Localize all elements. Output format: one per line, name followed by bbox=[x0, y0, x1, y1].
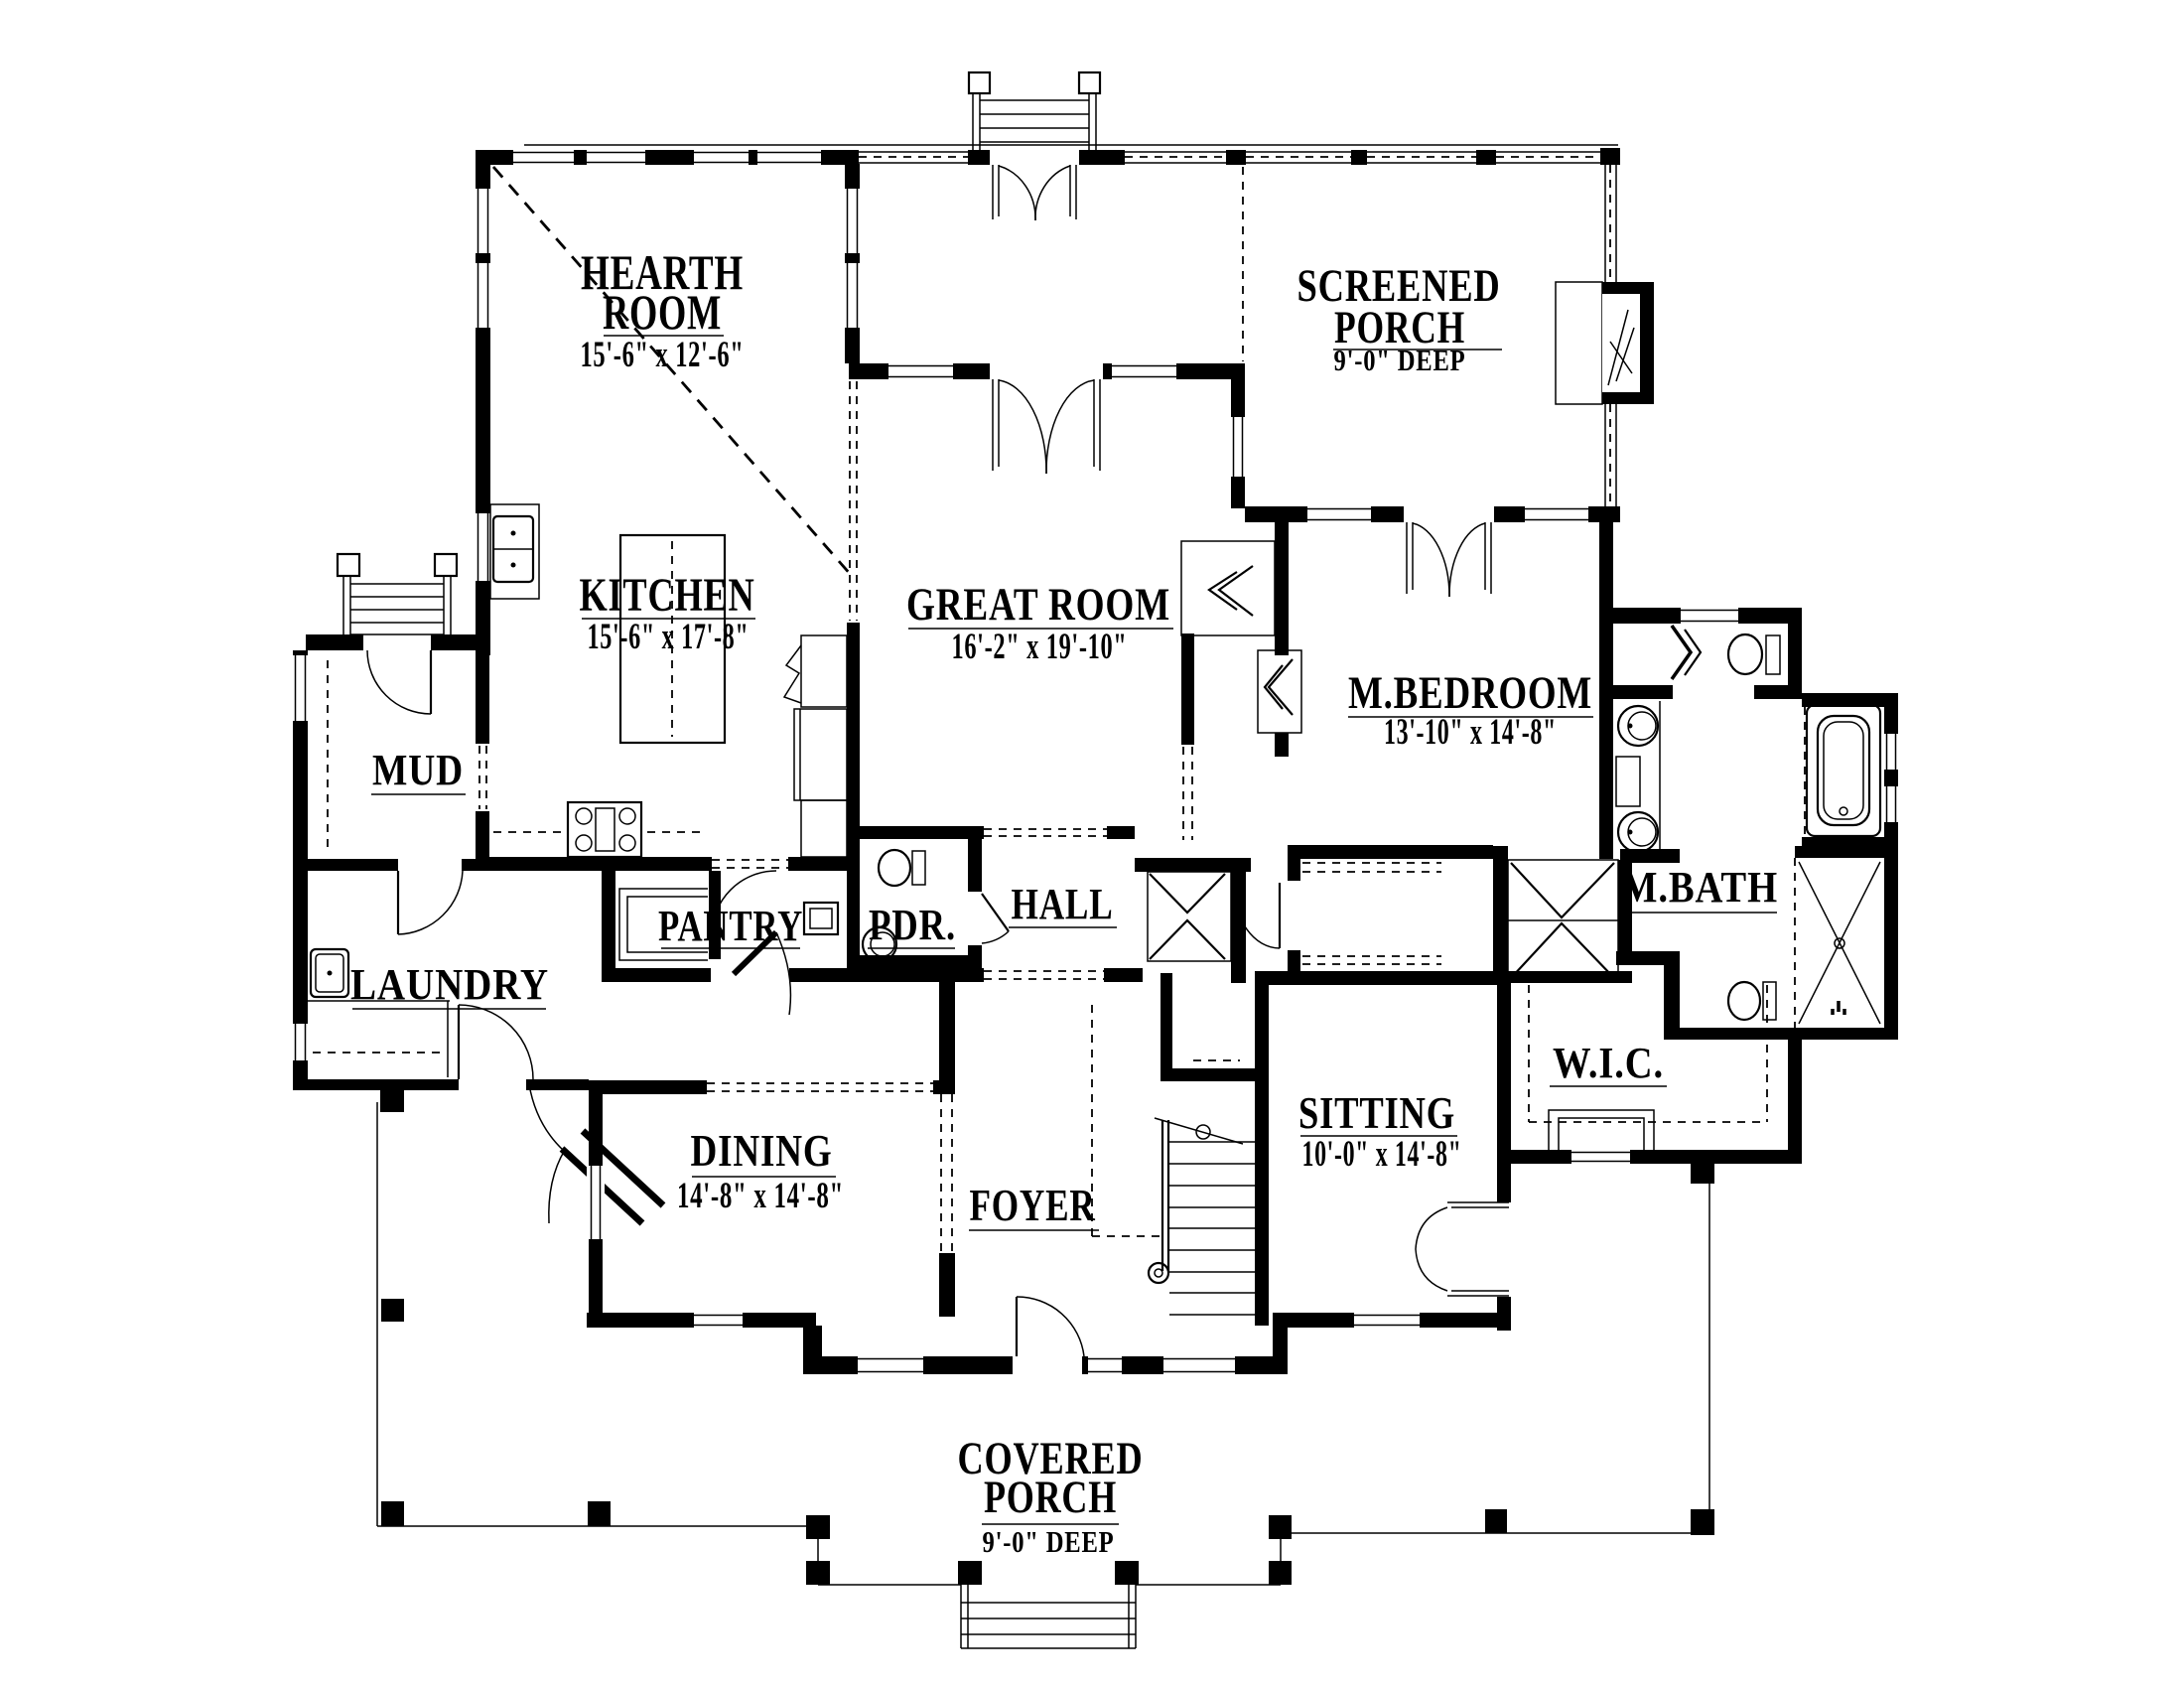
svg-text:PDR.: PDR. bbox=[869, 901, 956, 949]
svg-text:MUD: MUD bbox=[372, 746, 464, 794]
svg-text:W.I.C.: W.I.C. bbox=[1553, 1039, 1664, 1087]
svg-text:PANTRY: PANTRY bbox=[658, 902, 803, 950]
svg-text:FOYER: FOYER bbox=[970, 1180, 1096, 1230]
svg-text:ROOM: ROOM bbox=[603, 284, 722, 340]
svg-text:9'-0" DEEP: 9'-0" DEEP bbox=[1334, 343, 1466, 377]
svg-text:LAUNDRY: LAUNDRY bbox=[350, 960, 549, 1009]
svg-text:13'-10" x 14'-8": 13'-10" x 14'-8" bbox=[1384, 712, 1557, 753]
svg-text:9'-0" DEEP: 9'-0" DEEP bbox=[983, 1524, 1115, 1559]
svg-text:15'-6" x 17'-8": 15'-6" x 17'-8" bbox=[588, 617, 750, 657]
svg-text:GREAT ROOM: GREAT ROOM bbox=[906, 579, 1170, 631]
svg-text:DINING: DINING bbox=[691, 1125, 833, 1176]
svg-text:SITTING: SITTING bbox=[1298, 1087, 1455, 1138]
svg-text:KITCHEN: KITCHEN bbox=[580, 569, 755, 622]
svg-text:10'-0" x 14'-8": 10'-0" x 14'-8" bbox=[1302, 1134, 1462, 1175]
svg-text:HALL: HALL bbox=[1012, 880, 1114, 928]
svg-text:M.BATH: M.BATH bbox=[1621, 863, 1778, 912]
svg-text:PORCH: PORCH bbox=[984, 1472, 1117, 1523]
svg-text:16'-2" x 19'-10": 16'-2" x 19'-10" bbox=[952, 627, 1128, 667]
svg-text:15'-6" x 12'-6": 15'-6" x 12'-6" bbox=[581, 335, 745, 375]
svg-text:14'-8" x 14'-8": 14'-8" x 14'-8" bbox=[677, 1176, 844, 1216]
